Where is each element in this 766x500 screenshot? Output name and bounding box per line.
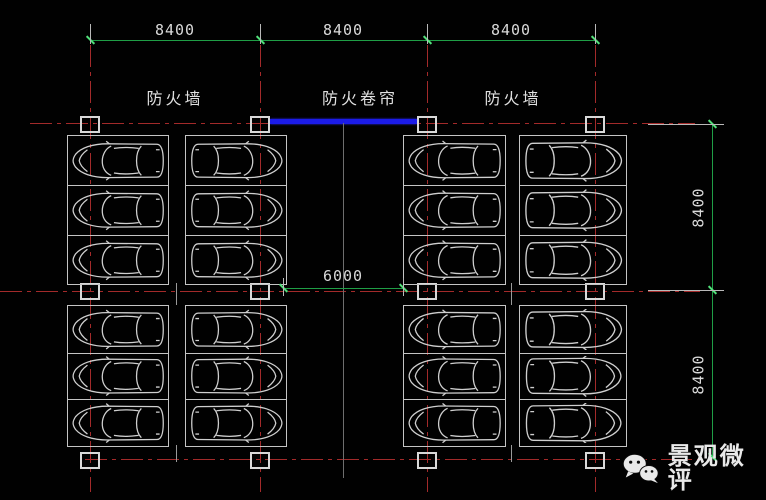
fire-wall-label-right: 防火墙 <box>453 91 573 107</box>
extension-line <box>427 24 428 44</box>
car-icon <box>523 309 624 350</box>
car-icon <box>189 356 284 396</box>
aisle-dimension-line <box>283 288 403 289</box>
cad-parking-plan: 8400 8400 8400 防火墙 防火卷帘 防火墙 <box>0 0 766 500</box>
car-icon <box>71 189 166 232</box>
block-connector-line <box>176 445 177 462</box>
car-icon <box>407 239 503 282</box>
extension-line <box>90 24 91 44</box>
dim-label-right-2: 8400 <box>692 345 707 405</box>
parking-stall <box>520 185 626 234</box>
dim-label-top-1: 8400 <box>145 23 205 38</box>
parking-stall <box>404 185 505 234</box>
car-icon <box>189 239 284 282</box>
dim-label-aisle: 6000 <box>313 269 373 284</box>
parking-stall <box>404 136 505 185</box>
car-icon <box>407 189 503 232</box>
parking-stall <box>68 399 168 446</box>
car-icon <box>189 139 284 182</box>
column-marker <box>585 452 605 469</box>
column-marker <box>417 283 437 300</box>
column-marker <box>585 283 605 300</box>
watermark-text: 景观微评 <box>668 444 766 492</box>
parking-stall <box>186 306 286 353</box>
parking-stall <box>520 235 626 284</box>
car-icon <box>407 356 503 396</box>
parking-stall <box>186 235 286 284</box>
block-connector-line <box>176 283 177 305</box>
parking-stall <box>520 306 626 353</box>
parking-block-upper-left-col-a <box>67 135 169 285</box>
extension-line <box>260 24 261 44</box>
car-icon <box>523 189 624 232</box>
parking-block-lower-right-col-a <box>403 305 506 447</box>
car-icon <box>189 189 284 232</box>
parking-stall <box>68 235 168 284</box>
parking-stall <box>68 136 168 185</box>
parking-stall <box>186 136 286 185</box>
wechat-icon <box>622 452 660 485</box>
parking-stall <box>404 399 505 446</box>
column-marker <box>250 283 270 300</box>
car-icon <box>189 309 284 350</box>
aisle-centerline <box>343 123 344 478</box>
column-marker <box>80 283 100 300</box>
parking-stall <box>68 185 168 234</box>
column-marker <box>417 116 437 133</box>
parking-block-lower-left-col-a <box>67 305 169 447</box>
parking-stall <box>404 306 505 353</box>
dim-label-top-3: 8400 <box>481 23 541 38</box>
parking-stall <box>404 353 505 400</box>
car-icon <box>71 139 166 182</box>
watermark: 景观微评 <box>622 444 766 492</box>
top-dimension-line <box>90 40 595 41</box>
parking-block-upper-left-col-b <box>185 135 287 285</box>
block-connector-line <box>511 445 512 462</box>
column-marker <box>585 116 605 133</box>
grid-line-horizontal-3 <box>85 459 700 460</box>
car-icon <box>71 403 166 443</box>
column-marker <box>250 116 270 133</box>
fire-shutter-label: 防火卷帘 <box>290 91 430 107</box>
parking-stall <box>520 353 626 400</box>
extension-line <box>595 24 596 44</box>
column-marker <box>250 452 270 469</box>
parking-stall <box>68 306 168 353</box>
column-marker <box>80 116 100 133</box>
parking-block-upper-right-col-b <box>519 135 627 285</box>
car-icon <box>523 356 624 396</box>
fire-wall-label-left: 防火墙 <box>115 91 235 107</box>
parking-stall <box>68 353 168 400</box>
parking-block-upper-right-col-a <box>403 135 506 285</box>
parking-stall <box>520 136 626 185</box>
column-marker <box>80 452 100 469</box>
parking-block-lower-right-col-b <box>519 305 627 447</box>
dim-label-right-1: 8400 <box>692 178 707 238</box>
car-icon <box>407 403 503 443</box>
car-icon <box>407 139 503 182</box>
car-icon <box>523 403 624 443</box>
parking-stall <box>520 399 626 446</box>
dim-label-top-2: 8400 <box>313 23 373 38</box>
parking-stall <box>404 235 505 284</box>
parking-block-lower-left-col-b <box>185 305 287 447</box>
block-connector-line <box>511 283 512 305</box>
car-icon <box>407 309 503 350</box>
extension-line <box>403 278 404 296</box>
parking-stall <box>186 353 286 400</box>
car-icon <box>523 139 624 182</box>
parking-stall <box>186 399 286 446</box>
car-icon <box>523 239 624 282</box>
parking-stall <box>186 185 286 234</box>
extension-line <box>648 290 724 291</box>
extension-line <box>648 124 724 125</box>
car-icon <box>71 309 166 350</box>
car-icon <box>71 239 166 282</box>
extension-line <box>283 278 284 296</box>
car-icon <box>71 356 166 396</box>
column-marker <box>417 452 437 469</box>
car-icon <box>189 403 284 443</box>
